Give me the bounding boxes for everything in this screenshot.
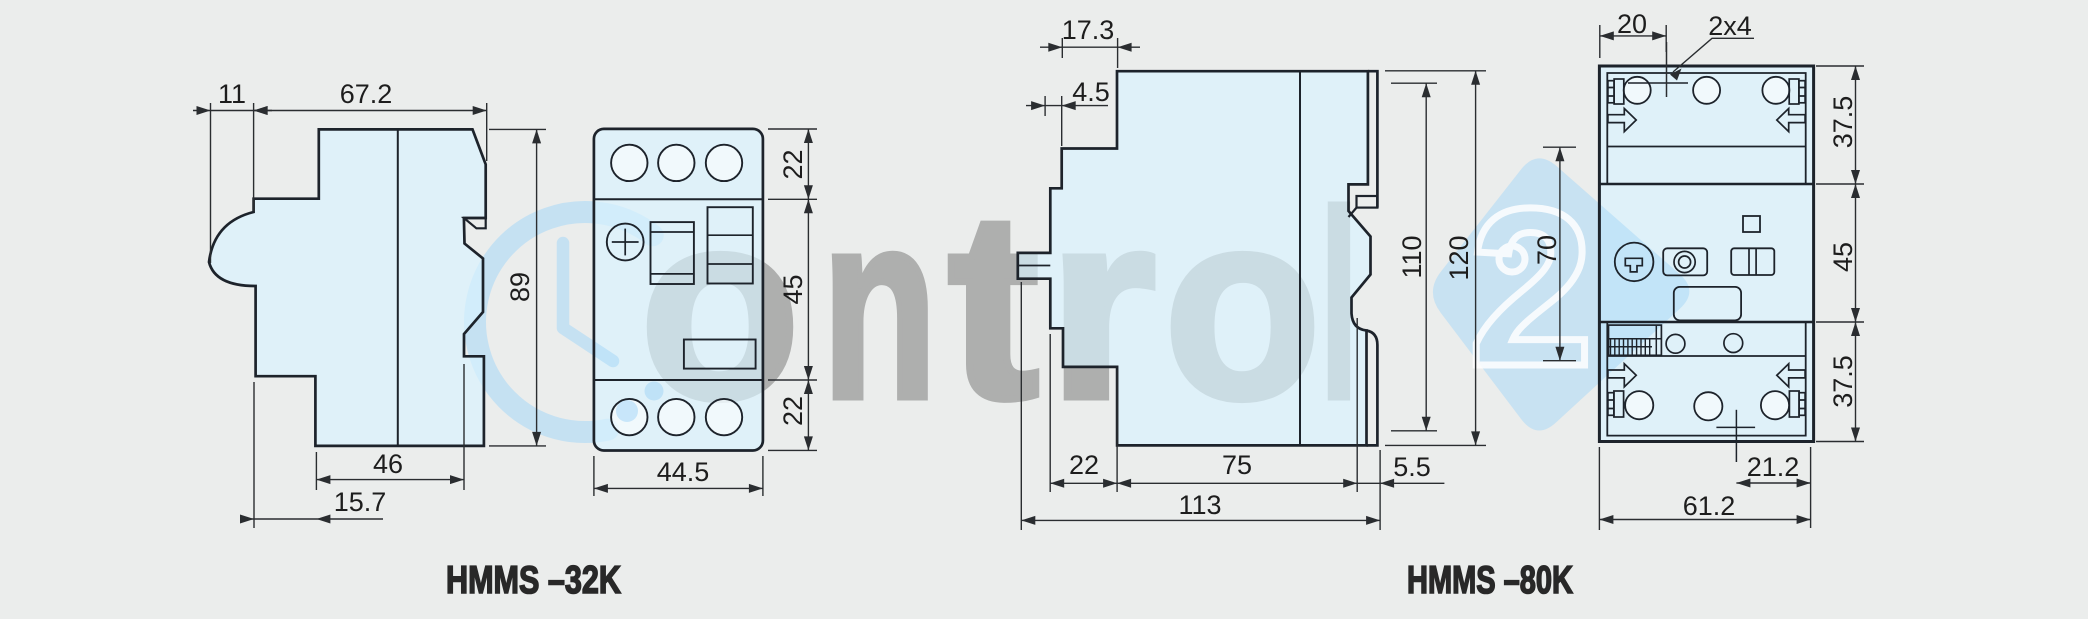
svg-text:5.5: 5.5 [1393,452,1431,482]
svg-text:4.5: 4.5 [1072,77,1110,107]
svg-text:70: 70 [1532,235,1562,265]
svg-text:20: 20 [1617,9,1647,39]
svg-text:37.5: 37.5 [1828,355,1858,408]
svg-text:HMMS –32K: HMMS –32K [446,559,621,602]
svg-text:2x4: 2x4 [1708,11,1752,41]
svg-text:67.2: 67.2 [340,79,393,109]
svg-text:75: 75 [1222,450,1252,480]
svg-text:61.2: 61.2 [1683,491,1736,521]
svg-text:HMMS –80K: HMMS –80K [1407,559,1573,602]
svg-text:110: 110 [1397,235,1427,278]
svg-text:89: 89 [505,272,535,302]
svg-text:45: 45 [778,274,808,304]
svg-text:22: 22 [778,149,808,179]
svg-text:45: 45 [1828,242,1858,272]
svg-text:22: 22 [778,396,808,426]
svg-text:46: 46 [373,449,403,479]
svg-text:21.2: 21.2 [1747,452,1800,482]
svg-text:11: 11 [218,79,246,109]
svg-text:n: n [822,158,937,454]
svg-text:2: 2 [1468,161,1593,413]
svg-text:22: 22 [1069,450,1099,480]
svg-text:120: 120 [1444,235,1474,280]
svg-text:17.3: 17.3 [1062,15,1115,45]
svg-text:37.5: 37.5 [1828,96,1858,149]
svg-text:44.5: 44.5 [657,457,710,487]
svg-text:113: 113 [1178,490,1221,520]
svg-text:t: t [948,158,1039,454]
svg-text:15.7: 15.7 [334,487,387,517]
